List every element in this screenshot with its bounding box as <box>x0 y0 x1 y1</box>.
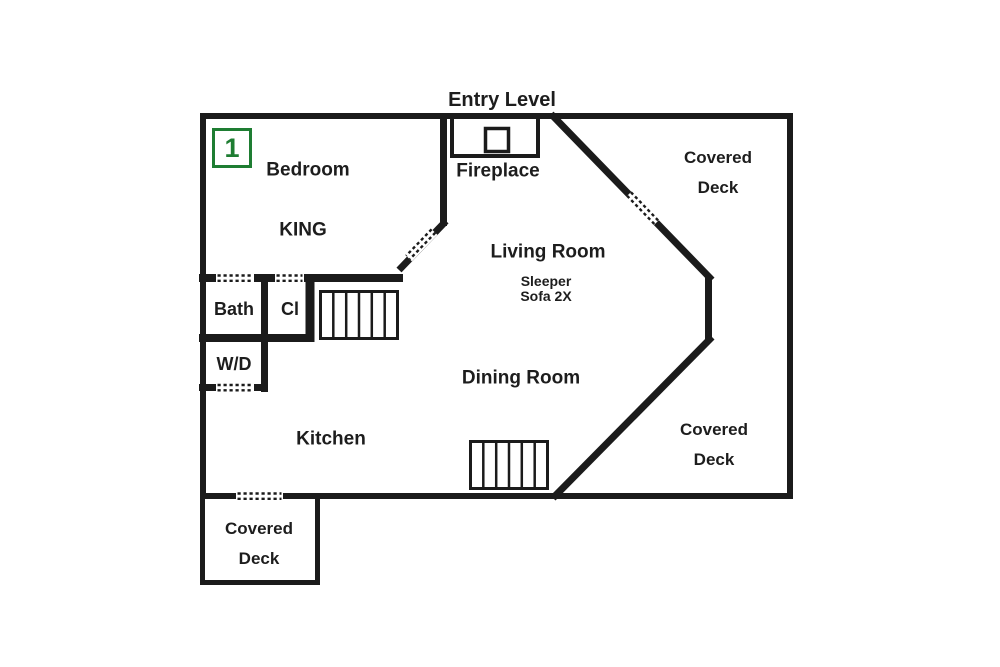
label-living-room: Living Room <box>490 243 605 264</box>
label-deck-top-right: Covered Deck <box>684 143 752 203</box>
plan-title: Entry Level <box>448 89 556 111</box>
label-kitchen: Kitchen <box>296 430 366 451</box>
label-bedroom-bed: KING <box>279 221 327 242</box>
label-bath: Bath <box>214 300 254 320</box>
label-deck-bottom-left: Covered Deck <box>225 514 293 574</box>
door-bedroom-diagonal <box>406 229 435 259</box>
label-living-room-note: Sleeper Sofa 2X <box>520 274 571 304</box>
label-sofa-2x: Sofa 2X <box>520 289 571 304</box>
floor-plan: Entry Level 1 Bedroom KING Fireplace Liv… <box>0 0 1000 667</box>
fireplace-box-icon <box>486 129 509 152</box>
door-closet <box>275 273 304 284</box>
stairs-upper-icon <box>321 292 398 339</box>
bedroom-number: 1 <box>224 133 239 164</box>
door-deck-diagonal <box>627 192 658 224</box>
label-dining-room: Dining Room <box>462 369 580 390</box>
label-sleeper: Sleeper <box>520 274 571 289</box>
door-bath <box>216 273 254 284</box>
bedroom-number-badge: 1 <box>212 128 252 168</box>
label-washer-dryer: W/D <box>217 355 252 375</box>
label-bedroom: Bedroom <box>266 161 349 182</box>
stairs-lower-icon <box>471 442 548 489</box>
door-laundry <box>216 382 254 393</box>
label-deck-bottom-right: Covered Deck <box>680 415 748 475</box>
label-fireplace: Fireplace <box>456 162 539 183</box>
label-closet: Cl <box>281 300 299 320</box>
door-kitchen-deck <box>236 491 283 502</box>
